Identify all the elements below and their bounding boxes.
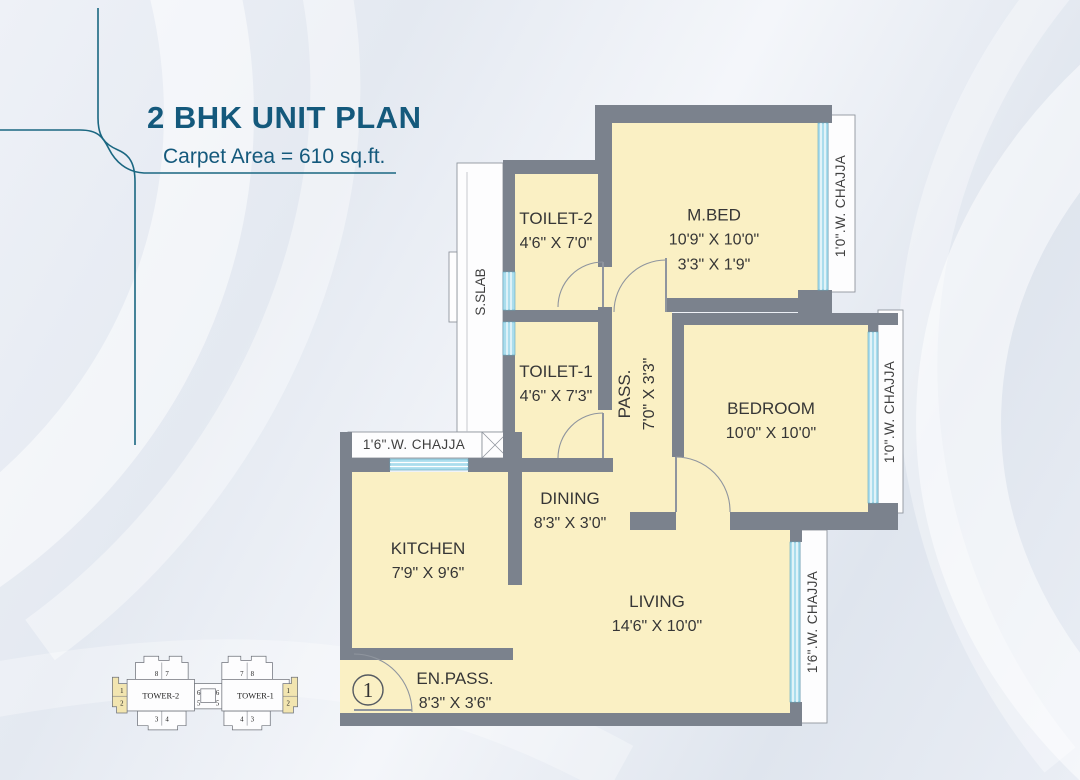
keyplan-num: 5 <box>216 701 220 708</box>
keyplan-num: 3 <box>155 716 159 723</box>
room-name: DINING <box>534 486 607 511</box>
label-mbed: M.BED 10'9" X 10'0" 3'3" X 1'9" <box>669 203 759 278</box>
room-dim: 3'3" X 1'9" <box>669 253 759 278</box>
keyplan-num: 2 <box>120 701 124 708</box>
room-name: KITCHEN <box>391 536 466 561</box>
label-chajja-living: 1'6".W. CHAJJA <box>805 571 821 673</box>
keyplan-num: 6 <box>216 690 220 697</box>
label-dining: DINING 8'3" X 3'0" <box>534 486 607 536</box>
keyplan-num: 3 <box>251 716 255 723</box>
keyplan-tower1-label: TOWER-1 <box>237 690 274 700</box>
floor-plan-page: 1 TOWER-2 TOWER-1 8 <box>0 0 1080 780</box>
room-dim: 7'9" X 9'6" <box>391 561 466 586</box>
window-mbed <box>818 123 828 290</box>
annotation-text: 1'0".W. CHAJJA <box>833 155 849 257</box>
room-name: EN.PASS. <box>416 666 493 691</box>
annotation-text: S.SLAB <box>473 268 489 315</box>
room-name: TOILET-2 <box>519 206 592 231</box>
label-toilet2: TOILET-2 4'6" X 7'0" <box>519 206 592 256</box>
window-living <box>790 542 800 702</box>
window-bedroom <box>868 332 878 503</box>
keyplan-num: 4 <box>165 716 169 723</box>
label-toilet1: TOILET-1 4'6" X 7'3" <box>519 359 592 409</box>
label-chajja-bedroom: 1'0".W. CHAJJA <box>882 361 898 463</box>
label-pass: PASS. 7'0" X 3'3" <box>612 358 662 431</box>
room-dim: 8'3" X 3'0" <box>534 511 607 536</box>
annotation-text: 1'6".W. CHAJJA <box>805 571 821 673</box>
keyplan-num: 7 <box>240 671 244 678</box>
room-name: BEDROOM <box>726 396 816 421</box>
room-dim: 10'9" X 10'0" <box>669 228 759 253</box>
entrance-number: 1 <box>363 678 374 702</box>
keyplan-tower2-label: TOWER-2 <box>142 690 179 700</box>
label-chajja-mbed: 1'0".W. CHAJJA <box>833 155 849 257</box>
room-name: PASS. <box>612 358 637 431</box>
window-kitchen <box>390 459 468 470</box>
page-title: 2 BHK UNIT PLAN <box>147 100 421 136</box>
room-dim: 4'6" X 7'0" <box>519 231 592 256</box>
keyplan-num: 1 <box>120 688 123 695</box>
page-subtitle: Carpet Area = 610 sq.ft. <box>163 145 385 169</box>
room-dim: 10'0" X 10'0" <box>726 421 816 446</box>
room-name: LIVING <box>612 589 702 614</box>
keyplan-num: 1 <box>286 688 289 695</box>
entrance-number-badge: 1 <box>353 675 383 705</box>
room-dim: 8'3" X 3'6" <box>416 691 493 716</box>
window-toilet2 <box>503 272 515 310</box>
keyplan-connector-core <box>201 689 216 703</box>
label-enpass: EN.PASS. 8'3" X 3'6" <box>416 666 493 716</box>
label-kitchen: KITCHEN 7'9" X 9'6" <box>391 536 466 586</box>
label-bedroom: BEDROOM 10'0" X 10'0" <box>726 396 816 446</box>
room-dim: 4'6" X 7'3" <box>519 384 592 409</box>
label-sslab: S.SLAB <box>473 268 489 315</box>
keyplan-num: 5 <box>197 701 201 708</box>
room-dim: 14'6" X 10'0" <box>612 614 702 639</box>
sslab-niche <box>449 252 457 322</box>
keyplan-num: 2 <box>286 701 290 708</box>
label-living: LIVING 14'6" X 10'0" <box>612 589 702 639</box>
keyplan-num: 8 <box>155 671 159 678</box>
room-name: M.BED <box>669 203 759 228</box>
label-chajja-kitchen: 1'6".W. CHAJJA <box>363 437 465 453</box>
keyplan-num: 8 <box>251 671 255 678</box>
annotation-text: 1'0".W. CHAJJA <box>882 361 898 463</box>
keyplan-num: 7 <box>165 671 169 678</box>
window-toilet1 <box>503 322 515 355</box>
room-name: TOILET-1 <box>519 359 592 384</box>
keyplan-num: 4 <box>240 716 244 723</box>
keyplan: TOWER-2 TOWER-1 8 7 3 4 1 2 6 5 6 5 7 8 … <box>112 652 298 732</box>
room-dim: 7'0" X 3'3" <box>637 358 662 431</box>
keyplan-num: 6 <box>197 690 201 697</box>
annotation-text: 1'6".W. CHAJJA <box>363 437 465 453</box>
